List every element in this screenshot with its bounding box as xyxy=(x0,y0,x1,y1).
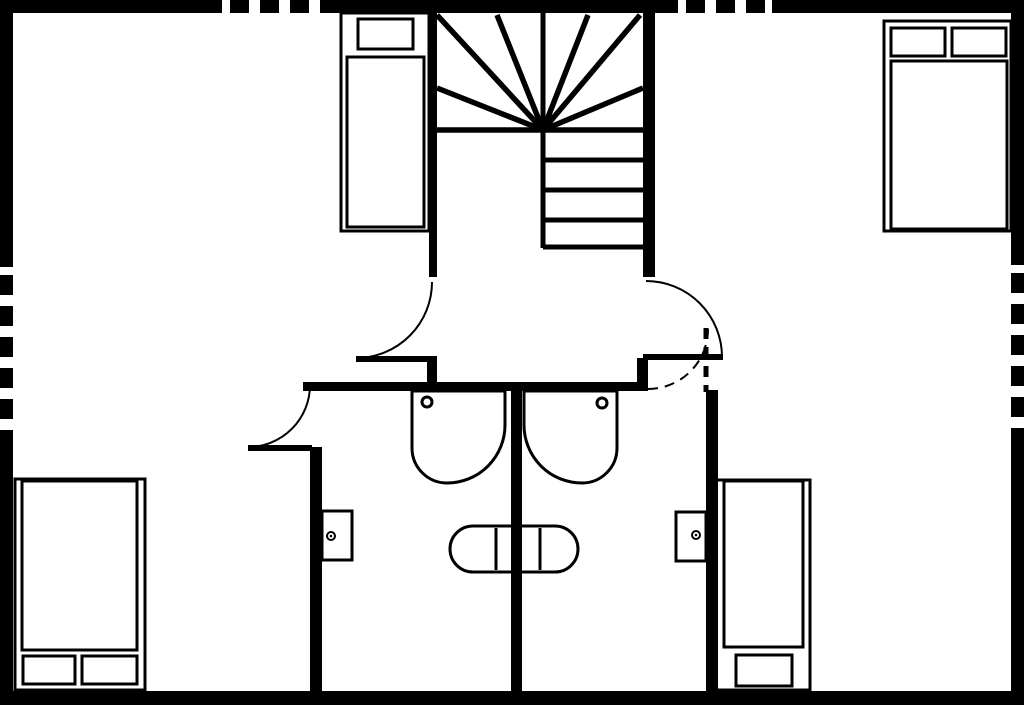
door-landing-right-swing-arc xyxy=(646,281,722,357)
top-wall-left xyxy=(0,0,222,13)
bed-bottom-left-pillow-0 xyxy=(23,656,75,684)
bed-top-right-mattress xyxy=(891,61,1007,229)
bed-top-left-pillow-0 xyxy=(358,19,413,49)
wall-box-right-knob-dot-icon xyxy=(695,534,698,537)
wall-box-left-knob-dot-icon xyxy=(330,535,333,538)
bed-bottom-right-mattress xyxy=(724,481,803,647)
door-post-right xyxy=(637,358,648,382)
stair-line-3 xyxy=(437,15,543,130)
door-landing-right-leaf xyxy=(643,354,723,360)
bottom-wall xyxy=(0,691,1024,705)
right-wall-upper xyxy=(1011,0,1024,265)
hall-wall xyxy=(303,382,648,391)
wall-box-right xyxy=(676,512,706,561)
right-wall-lower xyxy=(1011,435,1024,705)
bed-top-left-mattress xyxy=(347,57,424,227)
basin-right-drain-icon xyxy=(597,398,607,408)
top-wall-middle xyxy=(320,0,678,13)
bed-top-right-pillow-1 xyxy=(952,28,1006,56)
top-wall-right xyxy=(772,0,1024,13)
door-landing-left-swing-arc xyxy=(356,282,432,358)
stairwell-wall-left xyxy=(429,13,437,277)
stairwell-wall-right xyxy=(643,13,655,277)
bathroom-wall-east xyxy=(706,390,718,691)
bed-bottom-right-pillow-0 xyxy=(736,655,792,686)
floor-plan xyxy=(0,0,1024,705)
basin-left-drain-icon xyxy=(422,397,432,407)
bed-bottom-left-pillow-1 xyxy=(82,656,137,684)
stair-line-6 xyxy=(543,15,640,130)
bed-top-right-pillow-0 xyxy=(891,28,945,56)
bathroom-wall-west xyxy=(310,447,322,691)
bathroom-wall-center xyxy=(511,391,522,691)
floor-plan-page xyxy=(0,0,1024,705)
left-wall-upper xyxy=(0,0,13,267)
bed-bottom-left-mattress xyxy=(22,481,137,650)
left-wall-lower xyxy=(0,437,13,705)
door-bedroom-left-swing-arc xyxy=(248,385,310,447)
